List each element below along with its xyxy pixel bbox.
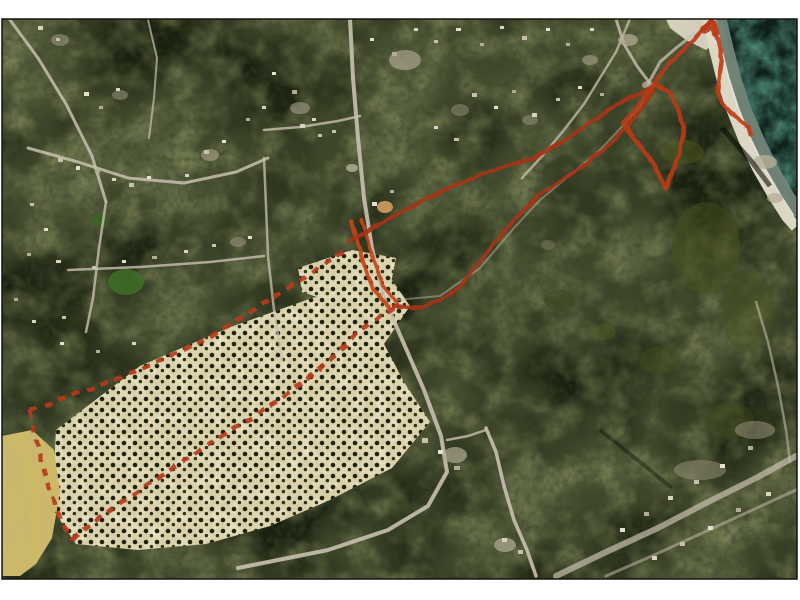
clearing (582, 55, 598, 65)
building (292, 90, 297, 94)
green-patch (640, 346, 680, 374)
clearing (290, 102, 310, 114)
clearing (541, 240, 555, 250)
building (14, 298, 18, 301)
clearing (346, 164, 358, 172)
building (84, 92, 89, 96)
building (370, 38, 374, 41)
building (38, 26, 43, 30)
building (212, 244, 216, 247)
green-patch (108, 269, 144, 295)
building (147, 176, 151, 179)
building (456, 28, 461, 31)
building (272, 72, 276, 75)
building (502, 538, 507, 542)
building (414, 28, 418, 31)
building (62, 316, 66, 319)
building (392, 52, 397, 56)
building (454, 138, 459, 141)
building (99, 106, 103, 109)
building (248, 236, 252, 239)
clearing (674, 460, 726, 480)
clearing (230, 237, 246, 247)
building (472, 93, 477, 97)
building (95, 170, 100, 173)
building (60, 342, 64, 345)
clearing (443, 447, 467, 463)
building (766, 492, 771, 496)
building (422, 438, 428, 443)
building (390, 190, 394, 193)
building (56, 38, 60, 41)
building (166, 180, 171, 183)
clearing (112, 90, 128, 100)
building (620, 528, 625, 532)
clearing (618, 34, 638, 46)
clearing (377, 201, 393, 213)
building (185, 174, 189, 177)
clearing (201, 149, 219, 161)
building (96, 350, 100, 353)
building (116, 88, 120, 91)
building (312, 118, 316, 121)
building (644, 512, 649, 516)
building (600, 93, 604, 96)
building (512, 90, 516, 93)
building (76, 166, 80, 170)
green-patch (672, 202, 740, 294)
building (30, 203, 34, 206)
building (27, 253, 31, 256)
scanned-page (0, 0, 800, 600)
aerial-photo-frame (0, 0, 800, 600)
building (44, 228, 48, 231)
aerial-photo (0, 0, 800, 600)
building (668, 496, 673, 500)
building (262, 106, 266, 109)
building (578, 86, 582, 89)
building (532, 113, 537, 117)
building (522, 36, 527, 40)
building (152, 256, 157, 259)
building (204, 150, 209, 154)
building (112, 178, 116, 181)
building (720, 464, 725, 468)
building (500, 26, 504, 29)
green-patch (544, 290, 576, 310)
building (546, 28, 550, 31)
building (184, 250, 188, 253)
building (694, 480, 699, 484)
building (566, 43, 570, 46)
building (556, 98, 560, 101)
building (32, 320, 36, 323)
building (92, 266, 96, 269)
building (318, 134, 322, 137)
building (332, 130, 336, 133)
building (434, 40, 438, 43)
building (434, 126, 438, 129)
building (58, 158, 63, 162)
building (680, 542, 685, 546)
building (748, 446, 753, 450)
building (132, 342, 136, 345)
building (122, 260, 126, 263)
building (300, 124, 305, 128)
building (480, 43, 484, 46)
building (246, 118, 250, 121)
building (708, 526, 713, 530)
green-patch (90, 213, 110, 227)
building (129, 183, 134, 187)
building (494, 106, 498, 109)
building (652, 556, 657, 560)
green-patch (592, 324, 616, 340)
building (736, 508, 741, 512)
clearing (735, 421, 775, 439)
clearing (451, 104, 469, 116)
building (518, 550, 523, 554)
building (590, 28, 594, 31)
building (454, 466, 460, 470)
clearing (767, 193, 783, 203)
building (372, 202, 377, 206)
building (56, 260, 61, 263)
building (438, 450, 443, 454)
building (222, 140, 226, 143)
